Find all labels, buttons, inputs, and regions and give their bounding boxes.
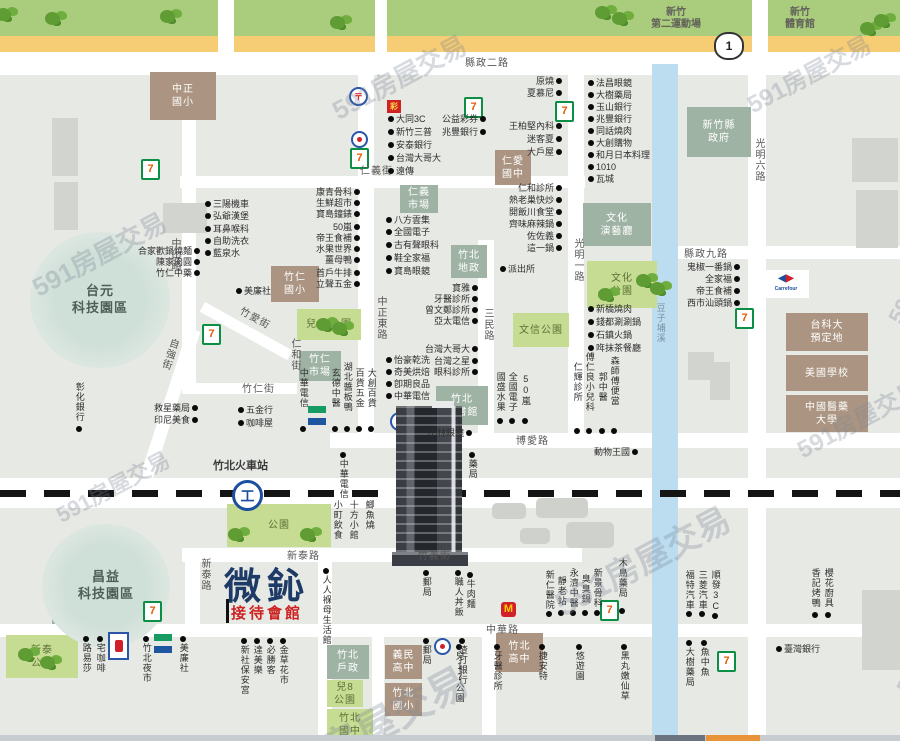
poi-dot bbox=[340, 452, 346, 458]
poi-label: 寶雅 bbox=[452, 283, 478, 294]
label-text: 牙醫診所 bbox=[492, 651, 503, 691]
seven-eleven-icon: 7 bbox=[141, 159, 160, 180]
poi-dot bbox=[611, 428, 617, 434]
label-text: 全國電子 bbox=[507, 372, 518, 412]
poi-dot bbox=[686, 611, 692, 617]
poi-dot bbox=[205, 226, 211, 232]
poi-label: 兆豐銀行 bbox=[442, 127, 486, 138]
poi-dot bbox=[556, 221, 562, 227]
poi-dot bbox=[354, 270, 360, 276]
poi-dot bbox=[576, 644, 582, 650]
label-text: 安泰銀行 bbox=[396, 140, 432, 151]
label-text: 仁輝診所 bbox=[572, 362, 583, 402]
label-text: 小町飲食 bbox=[332, 500, 343, 540]
poi-label: 國盛水果 bbox=[495, 372, 506, 424]
poi-label: 捷安特 bbox=[537, 644, 548, 681]
label-text: 黑丸嫩仙草 bbox=[619, 651, 630, 701]
tree-icon bbox=[874, 14, 889, 27]
label-text: 仁和診所 bbox=[518, 183, 554, 194]
poi-label: 瓦城 bbox=[588, 174, 614, 185]
poi-dot bbox=[354, 235, 360, 241]
street-label: 竹義街 bbox=[418, 551, 451, 563]
poi-dot bbox=[386, 242, 392, 248]
poi-label: 台灣大哥大 bbox=[425, 344, 478, 355]
poi-label: 自助洗衣 bbox=[205, 236, 249, 247]
poi-dot bbox=[494, 644, 500, 650]
poi-label: 悠遊園 bbox=[574, 644, 585, 681]
poi-dot bbox=[354, 257, 360, 263]
poi-dot bbox=[621, 644, 627, 650]
poi-dot bbox=[354, 246, 360, 252]
label-text: 順發3C bbox=[710, 570, 721, 612]
carrefour-icon: ◀▶Carrefour bbox=[763, 270, 809, 298]
poi-dot bbox=[205, 250, 211, 256]
label-text: 寶雅 bbox=[452, 283, 470, 294]
label-text: 十方小館 bbox=[348, 500, 359, 540]
poi-label: 仁輝診所 bbox=[572, 362, 583, 434]
poi-label: 古有聲眼科 bbox=[386, 240, 439, 251]
label-text: 寶島眼鏡 bbox=[394, 266, 430, 277]
interchange-shape bbox=[520, 528, 550, 544]
poi-dot bbox=[194, 248, 200, 254]
poi-label: 牙醫診所 bbox=[434, 294, 478, 305]
poi-label: 兆豐銀行 bbox=[588, 114, 632, 125]
poi-dot bbox=[386, 268, 392, 274]
tree-icon bbox=[316, 318, 331, 331]
poi-dot bbox=[588, 92, 594, 98]
poi-label: 臺灣銀行 bbox=[776, 644, 820, 655]
poi-dot bbox=[556, 123, 562, 129]
label-text: 1010 bbox=[596, 162, 616, 173]
poi-label: 牛肉麵 bbox=[465, 572, 476, 609]
poi-label: 路易莎 bbox=[81, 636, 92, 673]
poi-label: 寶島眼鏡 bbox=[386, 266, 430, 277]
label-text: 50嵐 bbox=[520, 374, 531, 406]
poi-label: 美廉社 bbox=[178, 636, 189, 673]
label-text: 郭中醫 bbox=[597, 372, 608, 402]
poi-dot bbox=[354, 189, 360, 195]
poi-label: 順發3C bbox=[710, 570, 721, 616]
poi-label: 陳家肉圓 bbox=[156, 257, 200, 268]
label-text: 台灣之星 bbox=[434, 356, 470, 367]
poi-dot bbox=[344, 426, 350, 432]
park-box: 文信公園 bbox=[513, 313, 569, 347]
poi-label: 帝王食補 bbox=[316, 233, 360, 244]
poi-label: 八方雲集 bbox=[386, 215, 430, 226]
label-text: 宅咖啡 bbox=[95, 643, 106, 673]
poi-dot bbox=[522, 418, 528, 424]
poi-label: 法昌眼鏡 bbox=[588, 78, 632, 89]
tree-icon bbox=[330, 16, 345, 29]
poi-dot bbox=[386, 217, 392, 223]
poi-label: 康青骨科 bbox=[316, 187, 360, 198]
poi-label: 首戶牛排 bbox=[316, 268, 360, 279]
poi-dot bbox=[556, 149, 562, 155]
poi-dot bbox=[354, 281, 360, 287]
label-text: 櫻花廚具 bbox=[823, 568, 834, 608]
seven-eleven-icon: 7 bbox=[555, 101, 574, 122]
poi-dot bbox=[83, 636, 89, 642]
poi-dot bbox=[500, 266, 506, 272]
label-text: 大樹藥局 bbox=[596, 90, 632, 101]
tree-icon bbox=[45, 12, 60, 25]
label-text: 仁和街 bbox=[288, 338, 300, 371]
label-text: 百貨五金 bbox=[354, 368, 365, 408]
poi-dot bbox=[588, 345, 594, 351]
label-text: 陳家肉圓 bbox=[156, 257, 192, 268]
poi-label: 大戶屋 bbox=[527, 147, 562, 158]
bottom-edge-strip bbox=[706, 735, 760, 741]
poi-dot bbox=[539, 644, 545, 650]
label-text: 光明六路 bbox=[752, 138, 764, 182]
poi-dot bbox=[423, 570, 429, 576]
poi-label: 福特汽車 bbox=[684, 570, 695, 616]
label-text: 必勝客 bbox=[265, 645, 276, 675]
label-text: 自助洗衣 bbox=[213, 236, 249, 247]
poi-label: 小町飲食 bbox=[332, 500, 343, 540]
poi-dot bbox=[236, 288, 242, 294]
poi-label: 眼科診所 bbox=[434, 367, 478, 378]
building-footprint bbox=[163, 203, 207, 233]
poi-label: 仁和診所 bbox=[518, 183, 562, 194]
poi-dot bbox=[388, 129, 394, 135]
label-text: 牛肉麵 bbox=[465, 579, 476, 609]
poi-label: 生鮮超市 bbox=[316, 198, 360, 209]
poi-dot bbox=[686, 640, 692, 646]
label-text: 耳鼻喉科 bbox=[213, 224, 249, 235]
poi-label: 中華電信 bbox=[386, 391, 430, 402]
label-text: 佐佐義 bbox=[527, 231, 554, 242]
interchange-shape bbox=[536, 498, 588, 518]
building-footprint bbox=[852, 138, 898, 182]
label-text: 公益彩券 bbox=[442, 114, 478, 125]
poi-label: 耳鼻喉科 bbox=[205, 224, 249, 235]
poi-dot bbox=[588, 104, 594, 110]
poi-label: 和月日本料理 bbox=[588, 150, 650, 161]
mcdonalds-icon: M bbox=[501, 602, 516, 617]
poi-dot bbox=[701, 640, 707, 646]
civic-box: 仁義 市場 bbox=[400, 185, 438, 213]
tree-icon bbox=[0, 8, 11, 21]
street-label: 新泰路 bbox=[198, 558, 210, 591]
poi-label: 十方小館 bbox=[348, 500, 359, 540]
poi-label: 全家福 bbox=[705, 274, 740, 285]
poi-dot bbox=[734, 264, 740, 270]
poi-label: 豆子埔溪 bbox=[655, 303, 666, 343]
poi-dot bbox=[386, 357, 392, 363]
school-box: 竹仁 國小 bbox=[271, 266, 319, 302]
label-text: 新竹 體育館 bbox=[785, 7, 815, 31]
poi-dot bbox=[588, 80, 594, 86]
poi-dot bbox=[356, 426, 362, 432]
label-text: 50嵐 bbox=[333, 222, 352, 233]
poi-dot bbox=[599, 428, 605, 434]
poi-dot bbox=[388, 142, 394, 148]
label-text: 新竹 第二運動場 bbox=[651, 7, 701, 31]
label-text: 台灣大哥大 bbox=[396, 153, 441, 164]
poi-dot bbox=[497, 418, 503, 424]
poi-dot bbox=[472, 358, 478, 364]
poi-label: 公益彩券 bbox=[442, 114, 486, 125]
school-box: 台科大 預定地 bbox=[786, 313, 868, 351]
street-label: 仁和街 bbox=[288, 338, 300, 371]
poi-label: 錢都涮涮鍋 bbox=[588, 317, 641, 328]
label-text: 原燒 bbox=[536, 76, 554, 87]
poi-label: 遠傳 bbox=[388, 166, 414, 177]
poi-label: 開飯川食堂 bbox=[509, 207, 562, 218]
bank-logos-icon bbox=[154, 634, 172, 653]
school-box: 中正 國小 bbox=[150, 72, 216, 120]
poi-label: 印尼美食 bbox=[154, 415, 198, 426]
poi-label: 新竹三普 bbox=[388, 127, 432, 138]
street-label: 竹仁街 bbox=[242, 384, 275, 396]
poi-label: 森師傅便當 bbox=[609, 356, 620, 434]
building-footprint bbox=[710, 362, 730, 400]
label-text: 福特汽車 bbox=[684, 570, 695, 610]
seven-eleven-icon: 7 bbox=[717, 651, 736, 672]
label-text: 台灣大哥大 bbox=[425, 344, 470, 355]
building-footprint bbox=[52, 118, 78, 176]
label-text: 奇美烘焙 bbox=[394, 367, 430, 378]
poi-dot bbox=[254, 638, 260, 644]
label-text: 博愛路 bbox=[516, 436, 549, 448]
poi-label: 金草花市 bbox=[278, 638, 289, 685]
street-label: 縣政九路 bbox=[684, 249, 728, 261]
poi-dot bbox=[825, 612, 831, 618]
poi-label: 魚中魚 bbox=[699, 640, 710, 677]
poi-dot bbox=[386, 381, 392, 387]
poi-label: 中華電信 bbox=[338, 452, 349, 499]
building-footprint bbox=[862, 590, 900, 670]
school-box: 仁愛 國中 bbox=[495, 150, 531, 185]
poi-dot bbox=[205, 238, 211, 244]
label-text: 首戶牛排 bbox=[316, 268, 352, 279]
label-text: 王柏堅內科 bbox=[509, 121, 554, 132]
poi-label: 必勝客 bbox=[265, 638, 276, 675]
label-text: 同話燒肉 bbox=[596, 126, 632, 137]
poi-label: 彰化銀行 bbox=[74, 382, 85, 432]
label-text: 達美樂 bbox=[252, 645, 263, 675]
street-label: 竹北火車站 bbox=[213, 460, 268, 473]
poi-dot bbox=[556, 78, 562, 84]
poi-dot bbox=[734, 300, 740, 306]
poi-label: 迷客夏 bbox=[527, 134, 562, 145]
label-text: 帝王食補 bbox=[316, 233, 352, 244]
poi-label: 大創購物 bbox=[588, 138, 632, 149]
poi-dot bbox=[300, 426, 306, 432]
label-text: 香記烤鴨 bbox=[810, 568, 821, 608]
poi-label: 這一鍋 bbox=[527, 243, 562, 254]
tree-icon bbox=[650, 282, 665, 295]
poi-dot bbox=[280, 638, 286, 644]
poi-dot bbox=[480, 129, 486, 135]
label-text: 西市汕頭鍋 bbox=[687, 298, 732, 309]
poi-label: 藍泉水 bbox=[205, 248, 240, 259]
civic-box: 新竹縣 政府 bbox=[687, 107, 751, 157]
poi-dot bbox=[241, 638, 247, 644]
poi-dot bbox=[588, 116, 594, 122]
poi-dot bbox=[76, 426, 82, 432]
label-text: 鯽魚燒 bbox=[364, 500, 375, 530]
poi-label: 薑母鴨 bbox=[325, 255, 360, 266]
label-text: 臺灣銀行 bbox=[784, 644, 820, 655]
poi-dot bbox=[466, 430, 472, 436]
tree-icon bbox=[228, 528, 243, 541]
poi-dot bbox=[386, 369, 392, 375]
poi-dot bbox=[205, 213, 211, 219]
poi-dot bbox=[472, 307, 478, 313]
label-text: 大創購物 bbox=[596, 138, 632, 149]
poi-dot bbox=[194, 270, 200, 276]
poi-dot bbox=[455, 570, 461, 576]
label-text: 湖北醬板鴨 bbox=[342, 362, 353, 412]
label-text: 鞋全家福 bbox=[394, 253, 430, 264]
street-label: 三民路 bbox=[481, 308, 493, 341]
poi-dot bbox=[556, 245, 562, 251]
label-text: 派出所 bbox=[508, 264, 535, 275]
bank-logos-icon bbox=[308, 406, 326, 425]
civic-box: 竹北 戶政 bbox=[327, 645, 369, 679]
label-text: 牙醫診所 bbox=[434, 294, 470, 305]
label-text: 夏慕尼 bbox=[527, 88, 554, 99]
poi-label: 弘爺漢堡 bbox=[205, 211, 249, 222]
poi-label: 美廉社 bbox=[236, 286, 271, 297]
label-text: 竹仁中藥 bbox=[156, 268, 192, 279]
poi-label: 全國電子 bbox=[507, 372, 518, 424]
poi-dot bbox=[556, 136, 562, 142]
label-text: 美廉社 bbox=[178, 643, 189, 673]
label-text: 哖抹茶餐廳 bbox=[596, 343, 641, 354]
seven-eleven-icon: 7 bbox=[143, 601, 162, 622]
label-text: 傅仁良小兒科 bbox=[584, 352, 595, 412]
poi-label: 鬼椒一番鍋 bbox=[687, 262, 740, 273]
poi-dot bbox=[556, 209, 562, 215]
poi-dot bbox=[97, 636, 103, 642]
label-text: 魚中魚 bbox=[699, 647, 710, 677]
label-text: 悠遊園 bbox=[574, 651, 585, 681]
poi-dot bbox=[712, 613, 718, 619]
poi-dot bbox=[267, 638, 273, 644]
poi-dot bbox=[192, 417, 198, 423]
poi-dot bbox=[423, 638, 429, 644]
poi-dot bbox=[699, 611, 705, 617]
poi-dot bbox=[238, 407, 244, 413]
poi-dot bbox=[632, 449, 638, 455]
poi-label: 立聲五金 bbox=[316, 279, 360, 290]
label-text: 森師傅便當 bbox=[609, 356, 620, 406]
poi-dot bbox=[588, 306, 594, 312]
poi-dot bbox=[332, 426, 338, 432]
tree-icon bbox=[300, 528, 315, 541]
label-text: 郵局 bbox=[421, 577, 432, 597]
poi-label: 小林眼鏡 bbox=[428, 428, 472, 439]
poi-label: 1010 bbox=[588, 162, 616, 173]
poi-label: 水果世界 bbox=[316, 244, 360, 255]
label-text: 玄德中醫 bbox=[330, 368, 341, 408]
label-text: 全家福 bbox=[705, 274, 732, 285]
label-text: 三菱汽車 bbox=[697, 570, 708, 610]
poi-dot bbox=[472, 285, 478, 291]
label-text: 開飯川食堂 bbox=[509, 207, 554, 218]
poi-dot bbox=[734, 288, 740, 294]
poi-label: 大創百貨 bbox=[366, 368, 377, 432]
bottom-edge-strip bbox=[0, 735, 900, 741]
poi-dot bbox=[354, 224, 360, 230]
tree-icon bbox=[160, 10, 175, 23]
poi-dot bbox=[143, 636, 149, 642]
label-text: 中華路 bbox=[486, 625, 519, 637]
poi-dot bbox=[194, 259, 200, 265]
poi-dot bbox=[588, 152, 594, 158]
label-text: 遠傳 bbox=[396, 166, 414, 177]
seven-eleven-icon: 7 bbox=[735, 308, 754, 329]
label-text: 法昌眼鏡 bbox=[596, 78, 632, 89]
poi-dot bbox=[588, 319, 594, 325]
poi-label: 三陽機車 bbox=[205, 199, 249, 210]
project-subtitle: 接待會館 bbox=[231, 602, 303, 623]
label-text: 瓦城 bbox=[596, 174, 614, 185]
poi-dot bbox=[556, 90, 562, 96]
seven-eleven-icon: 7 bbox=[202, 324, 221, 345]
label-text: 竹義街 bbox=[418, 551, 451, 563]
poi-dot bbox=[574, 428, 580, 434]
poi-label: 帝王食補 bbox=[696, 286, 740, 297]
civic-box: 竹北 地政 bbox=[451, 245, 487, 278]
poi-dot bbox=[354, 211, 360, 217]
poi-label: 百貨五金 bbox=[354, 368, 365, 432]
label-text: 三民路 bbox=[481, 308, 493, 341]
label-text: 玉山銀行 bbox=[596, 102, 632, 113]
poi-dot bbox=[386, 229, 392, 235]
label-text: 職人丼飯 bbox=[453, 577, 464, 617]
poi-label: 咖啡屋 bbox=[238, 418, 273, 429]
label-text: 中華電信 bbox=[338, 459, 349, 499]
poi-label: 大同3C bbox=[388, 114, 426, 125]
poi-label: 大樹藥局 bbox=[588, 90, 632, 101]
river bbox=[652, 64, 678, 741]
label-text: 中正東路 bbox=[374, 296, 386, 340]
poi-label: 新竹 體育館 bbox=[785, 7, 815, 31]
label-text: 薑母鴨 bbox=[325, 255, 352, 266]
label-text: 兆豐銀行 bbox=[596, 114, 632, 125]
tree-icon bbox=[598, 288, 613, 301]
poi-label: 傅仁良小兒科 bbox=[584, 352, 595, 434]
poi-label: 人人褓母生活館 bbox=[321, 568, 332, 645]
gas-station-icon bbox=[108, 632, 129, 660]
street-label: 縣政二路 bbox=[465, 58, 509, 70]
poi-label: 西市汕頭鍋 bbox=[687, 298, 740, 309]
label-text: 救星藥局 bbox=[154, 403, 190, 414]
poi-label: 宅咖啡 bbox=[95, 636, 106, 673]
poi-dot bbox=[192, 405, 198, 411]
poi-dot bbox=[546, 611, 552, 617]
label-text: 康青骨科 bbox=[316, 187, 352, 198]
poi-label: 鞋全家福 bbox=[386, 253, 430, 264]
poi-dot bbox=[180, 636, 186, 642]
label-text: 五金行 bbox=[246, 405, 273, 416]
poi-dot bbox=[238, 420, 244, 426]
label-text: 新社保安宮 bbox=[239, 645, 250, 695]
label-text: 古有聲眼科 bbox=[394, 240, 439, 251]
label-text: 美廉社 bbox=[244, 286, 271, 297]
tree-icon bbox=[636, 274, 651, 287]
label-text: 竹北夜市 bbox=[141, 643, 152, 683]
poi-dot bbox=[388, 116, 394, 122]
road bbox=[182, 383, 297, 394]
poi-dot bbox=[812, 612, 818, 618]
poi-label: 黑丸嫩仙草 bbox=[619, 644, 630, 701]
label-text: 鬼椒一番鍋 bbox=[687, 262, 732, 273]
